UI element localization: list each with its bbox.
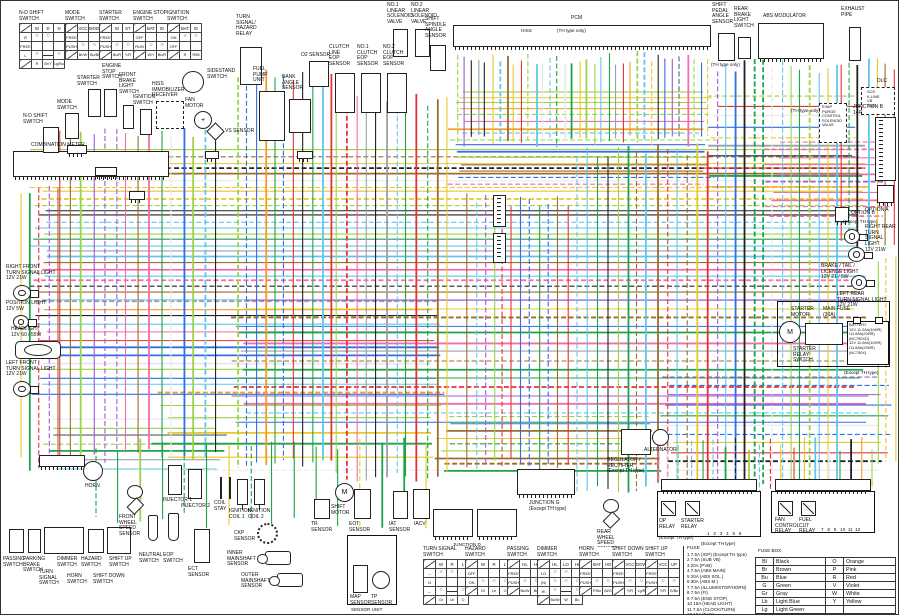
parking-brake-switch [28, 529, 41, 553]
relay-box-b-connector [775, 479, 871, 491]
meter-connector-3 [129, 191, 145, 200]
color-code: Br [756, 566, 774, 574]
switch-table-horn-switch: HORN SWITCHBATHOFREEPUSH○○P/BuBl/G [579, 547, 614, 596]
alternator-label: ALTERNATOR [644, 448, 677, 454]
right-rear-turn-signal-light-label: RIGHT REAR TURN SIGNAL LIGHT 12V 21W [865, 225, 898, 253]
switch-table-hazard-switch: HAZARD SWITCHWRLOFFON○○○GrLbO [465, 547, 511, 596]
diagram-note-9: FUSE BOX [758, 548, 781, 553]
ignition-switch-table: BATIGON○○OFFRR/Bl [167, 23, 202, 60]
col-header: ST [123, 24, 134, 33]
map-sensor-icon [353, 565, 368, 593]
shift-spindle-angle-sensor-label: SHIFT SPINDLE ANGLE SENSOR [425, 17, 446, 40]
col-header: N [54, 24, 65, 33]
horn-switch-table-title: HORN SWITCH [579, 547, 614, 558]
legend-table: BlBlackOOrangeBrBrownPPinkBuBlueRRedGGre… [755, 557, 896, 614]
nd-shift-switch-table: IGDNR○○FREEL○○RBr/YLg/Bu [19, 23, 65, 69]
diagram-note-7: 1 2 3 4 5 6 [707, 531, 741, 536]
switch-table-nd-shift-switch: N-D SHIFT SWITCHIGDNR○○FREEL○○RBr/YLg/Bu [19, 11, 65, 69]
horn [83, 461, 103, 481]
rear-brake-light-switch [738, 37, 751, 59]
col-header: LO [561, 560, 572, 569]
shift-up-switch-label-label: SHIFT UP SWITCH [109, 557, 132, 568]
dimmer-switch-table-title: DIMMER SWITCH [537, 547, 583, 558]
table-cell [489, 569, 500, 578]
color-code [826, 606, 844, 614]
op-relay-label: OP RELAY [659, 519, 675, 530]
col-header: VCC [625, 560, 636, 569]
ignition-coil-2-label: IGNITION COIL 2 [248, 509, 270, 520]
col-header: BAT [592, 560, 603, 569]
switch-table-ignition-switch: IGNITION SWITCHBATIGON○○OFFRR/Bl [167, 11, 202, 60]
junction-d-1 [433, 509, 473, 537]
no1-clutch-eop-sensor-label: NO.1 CLUTCH EOP SENSOR [357, 45, 378, 68]
turn-signal-switch-table-title: TURN SIGNAL SWITCH [423, 547, 469, 558]
nd-shift-switch [43, 127, 59, 153]
starter-relay [685, 501, 700, 516]
mid-junction-1 [493, 195, 506, 227]
table-cell [123, 33, 134, 42]
mode-switch-label: MODE SWITCH [57, 100, 77, 111]
color-name [844, 606, 896, 614]
nd-shift-switch-label: N-D SHIFT SWITCH [23, 114, 48, 125]
color-name: Brown [774, 566, 826, 574]
table-cell: ○ [54, 51, 65, 60]
shift-up-switch-table: VCCUPFREEPUSH○○Y/RG/Bu [645, 559, 680, 596]
color-name: Red [844, 574, 896, 582]
diagram-note-2: (TH type only) [711, 62, 740, 67]
table-cell [32, 42, 43, 51]
fuse-list: FUSE1 7.5A (IGP) (Except TH type)2 7.5A … [683, 546, 747, 615]
table-cell [191, 42, 202, 51]
horn-switch-label-label: HORN SWITCH [67, 574, 87, 585]
fuel-pump-unit-label: FUEL PUMP UNIT [253, 67, 267, 84]
iacv [413, 489, 430, 519]
table-cell: ○ [123, 42, 134, 51]
eop-switch-label: EOP SWITCH [163, 553, 183, 564]
neutral-switch [148, 515, 158, 541]
map-sensor-label: MAP SENSOR [350, 595, 371, 606]
col-header: UP [669, 560, 680, 569]
fan-control-relay-label: FAN CONTROL RELAY [775, 518, 799, 535]
alternator [652, 429, 669, 446]
table-cell: ○ [489, 578, 500, 587]
front-wheel-speed-sensor-icon [127, 485, 141, 513]
dlc-label: DLC [877, 79, 887, 85]
turn-signal-hazard-relay-label: TURN SIGNAL/ HAZARD RELAY [236, 15, 257, 38]
tp-sensor-icon [372, 571, 390, 589]
col-header: HL [550, 560, 561, 569]
starter-relay-switch-label: STARTER RELAY SWITCH [793, 347, 816, 364]
no2-clutch-eop-sensor-label: NO.2 CLUTCH EOP SENSOR [383, 45, 404, 68]
color-name: White [844, 590, 896, 598]
col-header: IG [32, 24, 43, 33]
diagram-note-4: (Except TH type) [843, 219, 877, 224]
headlight [15, 341, 61, 359]
engine-stop-switch-table: BATIGOFFRUN○○W/YBu/R [133, 23, 168, 60]
inner-mainshaft-sensor-label: INNER MAINSHAFT SENSOR [227, 551, 256, 568]
color-code: Bl [756, 558, 774, 566]
diagram-note-5: (Except TH type) [844, 370, 878, 375]
fan-control-relay [778, 501, 793, 516]
table-cell [43, 51, 54, 60]
color-code: Lb [756, 598, 774, 606]
diagram-note-12: (Except TH type) [659, 535, 693, 540]
table-cell: ○ [550, 569, 561, 578]
inner-mainshaft-sensor-icon [265, 551, 291, 565]
mode-switch [65, 113, 79, 139]
table-cell [78, 33, 89, 42]
col-header: IG [157, 24, 168, 33]
shift-pedal-angle-sensor-icon [718, 33, 735, 61]
fan-motor-label: FAN MOTOR [185, 98, 204, 109]
position-light-label: POSITION LIGHT 12V 5W [6, 301, 46, 312]
sidestand-switch [182, 71, 204, 93]
junction-g-label: JUNCTION G (Except TH type) [529, 501, 566, 512]
table-cell: ○ [550, 578, 561, 587]
color-code: Lg [756, 606, 774, 614]
col-header: IG [191, 24, 202, 33]
table-cell: ○ [520, 578, 531, 587]
rear-wheel-speed-sensor-icon [603, 499, 617, 527]
immobilizer-receiver-label: HISS IMMOBILIZER RECEIVER [152, 82, 185, 99]
bank-angle-sensor-label: BANK ANGLE SENSOR [282, 75, 303, 92]
mid-junction-2 [493, 233, 506, 263]
table-cell: ○ [658, 578, 669, 587]
color-name: Green [774, 582, 826, 590]
iacv-label: IACV [414, 522, 426, 528]
injector-2-label: INJECTOR 2 [181, 504, 210, 510]
shift-down-switch-table-title: SHIFT DOWN SWITCH [612, 547, 648, 558]
starter-relay-label: STARTER RELAY [681, 519, 704, 530]
tp-sensor-label: TP SENSOR [371, 595, 392, 606]
color-name: Yellow [844, 598, 896, 606]
table-cell: ○ [447, 569, 458, 578]
col-header: D [43, 24, 54, 33]
starter-motor-icon: M [779, 321, 801, 343]
table-cell [592, 569, 603, 578]
diagram-note-11: SENSOR UNIT [351, 607, 382, 612]
table-cell [447, 587, 458, 596]
diagram-note-0: HISS [521, 28, 532, 33]
table-cell [54, 42, 65, 51]
switch-table-shift-up-switch: SHIFT UP SWITCHVCCUPFREEPUSH○○Y/RG/Bu [645, 547, 680, 596]
fan-motor-icon: + [194, 111, 212, 129]
switch-table-dimmer-switch: DIMMER SWITCHHLLOHILO○○(N)○○○HI○○Bu/WWBu [537, 547, 583, 605]
color-name: Black [774, 558, 826, 566]
col-header: R [489, 560, 500, 569]
table-cell [43, 42, 54, 51]
o2-sensor-icon [309, 61, 329, 87]
starter-switch [88, 89, 101, 117]
table-cell: ○ [191, 33, 202, 42]
starter-motor-label: STARTER MOTOR [791, 307, 814, 318]
color-code: P [826, 566, 844, 574]
table-cell: ○ [32, 33, 43, 42]
relay-box-a-connector [661, 479, 757, 491]
coil-stay-label: COIL STAY [214, 501, 226, 512]
junction-d-2 [477, 509, 517, 537]
switch-table-shift-down-switch: SHIFT DOWN SWITCHVCCDOWNFREEPUSH○○Y/RLg/… [612, 547, 648, 596]
fuel-pump-unit [259, 91, 285, 141]
rear-brake-light-switch-label: REAR BRAKE LIGHT SWITCH [734, 7, 754, 30]
dimmer-switch-label-label: DIMMER SWITCH [57, 557, 77, 568]
harness-connector-strip [39, 455, 85, 467]
sidestand-switch-label: SIDESTAND SWITCH [207, 69, 235, 80]
harness-connector-4 [205, 151, 219, 159]
ect-sensor-icon [194, 529, 210, 563]
table-cell [561, 587, 572, 596]
pcm-label: PCM [571, 16, 582, 22]
table-cell: ○ [561, 578, 572, 587]
mode-switch-table: VCCMODEFREEPUSH○○Br/WBu/Bl [65, 23, 101, 60]
regulator-rectifier-label: REGULATOR / RECTIFIER (Except TH type) [607, 458, 644, 475]
table-cell: ○ [43, 33, 54, 42]
eot-sensor-icon [354, 489, 371, 519]
turn-signal-dimmer-switch [44, 527, 84, 554]
table-cell: ○ [436, 569, 447, 578]
mode-switch-table-title: MODE SWITCH [65, 11, 101, 22]
tr-sensor-label: TR SENSOR [311, 522, 332, 533]
fuel-cut-relay [801, 501, 816, 516]
ignition-coil-1 [237, 479, 248, 505]
engine-stop-switch [104, 89, 117, 117]
col-header: HL [520, 560, 531, 569]
right-front-turn-signal-light [13, 285, 31, 301]
color-name: Violet [844, 582, 896, 590]
starter-switch-label: STARTER SWITCH [77, 76, 100, 87]
nd-shift-switch-table-title: N-D SHIFT SWITCH [19, 11, 65, 22]
turn-signal-switch-table: WRL→○○N←○○GrLbO [423, 559, 469, 605]
exhaust-pipe [849, 27, 861, 61]
wiring-diagram-canvas: COMBINATION METERRIGHT FRONT TURN SIGNAL… [0, 0, 899, 615]
battery-label: BATTERY 12V 11.2Ah(10HR) /11.8Ah(20HR) (… [849, 323, 882, 355]
no1-linear-solenoid-valve-label: NO.1 LINEAR SOLENOID VALVE [387, 3, 413, 26]
shift-spindle-angle-sensor-icon [430, 45, 446, 71]
option-a [877, 185, 894, 203]
injector-2 [188, 469, 202, 499]
switch-table-mode-switch: MODE SWITCHVCCMODEFREEPUSH○○Br/WBu/Bl [65, 11, 101, 60]
col-header: W [436, 560, 447, 569]
headlight-label: HEADLIGHT 12V 60 / 55W [11, 327, 41, 338]
turn-signal-switch-label-label: TURN SIGNAL SWITCH [39, 570, 59, 587]
switch-table-starter-switch: STARTER SWITCHIGSTFREEPUSH○○Bu/RY/R [99, 11, 134, 60]
table-cell: ○ [550, 587, 561, 596]
iat-sensor-label: IAT SENSOR [389, 522, 410, 533]
col-header: VCC [78, 24, 89, 33]
color-code: V [826, 582, 844, 590]
table-cell [658, 569, 669, 578]
right-front-turn-signal-light-label: RIGHT FRONT TURN SIGNAL LIGHT 12V 21W [6, 265, 56, 282]
shift-motor-icon: M [335, 483, 354, 502]
table-cell: ○ [669, 578, 680, 587]
vs-sensor-label: VS SENSOR [225, 129, 254, 135]
exhaust-pipe-label: EXHAUST PIPE [841, 7, 865, 18]
left-front-turn-signal-light-label: LEFT FRONT TURN SIGNAL LIGHT 12V 21W [6, 361, 56, 378]
table-cell [157, 33, 168, 42]
color-name: Pink [844, 566, 896, 574]
color-code: G [756, 582, 774, 590]
ignition-switch-table-title: IGNITION SWITCH [167, 11, 202, 22]
table-cell: ○ [592, 578, 603, 587]
table-cell [436, 578, 447, 587]
shift-down-switch-table: VCCDOWNFREEPUSH○○Y/RLg/R [612, 559, 648, 596]
wire-color-legend: BlBlackOOrangeBrBrownPPinkBuBlueRRedGGre… [755, 557, 896, 614]
col-header: R [447, 560, 458, 569]
immobilizer-receiver [156, 101, 184, 129]
combination-meter [13, 151, 169, 177]
harness-connector-5 [297, 151, 313, 159]
ect-sensor-label: ECT SENSOR [188, 567, 209, 578]
table-cell [146, 33, 157, 42]
hazard-switch-table: WRLOFFON○○○GrLbO [465, 559, 511, 596]
table-cell: ○ [625, 578, 636, 587]
junction-g [517, 469, 575, 495]
col-header: BAT [180, 24, 191, 33]
eop-switch [168, 513, 179, 541]
table-cell: ○ [436, 587, 447, 596]
color-code: R [826, 574, 844, 582]
table-cell [447, 578, 458, 587]
tr-sensor-icon [314, 499, 330, 519]
main-fuse-label: MAIN FUSE (30A) [823, 307, 850, 318]
no2-clutch-eop-sensor-icon [387, 73, 407, 113]
table-cell: ○ [112, 42, 123, 51]
shift-up-switch-table-title: SHIFT UP SWITCH [645, 547, 680, 558]
diagram-note-1: (TH type only) [557, 28, 586, 33]
ckp-sensor-icon [257, 523, 278, 544]
injector-1 [168, 465, 182, 495]
front-brake-light-switch [123, 105, 134, 129]
abs-modulator-label: ABS MODULATOR [763, 14, 806, 20]
shift-pedal-angle-sensor-label: SHIFT PEDAL ANGLE SENSOR [712, 3, 733, 26]
hazard-switch-table-title: HAZARD SWITCH [465, 547, 511, 558]
color-code: O [826, 558, 844, 566]
starter-switch-table-title: STARTER SWITCH [99, 11, 134, 22]
meter-connector-2 [95, 167, 117, 176]
col-header: VCC [658, 560, 669, 569]
table-cell [54, 33, 65, 42]
color-code: Gr [756, 590, 774, 598]
o2-sensor-label: O2 SENSOR [301, 53, 330, 59]
left-front-turn-signal-light [13, 381, 31, 397]
color-name: Gray [774, 590, 826, 598]
iat-sensor-icon [393, 491, 408, 519]
hazard-switch [88, 529, 104, 553]
brake-tail-license-light-label: BRAKE / TAIL / LICENSE LIGHT 12V 21 / 5W [821, 264, 859, 281]
hazard-switch-label: HAZARD SWITCH [81, 557, 102, 568]
ignition-switch [140, 109, 152, 135]
passing-switch [9, 529, 24, 553]
color-code: W [826, 590, 844, 598]
horn-switch-table: BATHOFREEPUSH○○P/BuBl/G [579, 559, 614, 596]
dimmer-switch-table: HLLOHILO○○(N)○○○HI○○Bu/WWBu [537, 559, 583, 605]
switch-table-engine-stop-switch: ENGINE STOP SWITCHBATIGOFFRUN○○W/YBu/R [133, 11, 168, 60]
coil-stay [220, 477, 234, 499]
table-cell [180, 42, 191, 51]
neutral-switch-label: NEUTRAL SWITCH [139, 553, 162, 564]
outer-mainshaft-sensor-icon [277, 573, 303, 587]
front-brake-light-switch-label: FRONT BRAKE LIGHT SWITCH [119, 73, 139, 96]
color-code: Y [826, 598, 844, 606]
ckp-sensor-label: CKP SENSOR [234, 531, 255, 542]
starter-switch-table: IGSTFREEPUSH○○Bu/RY/R [99, 23, 134, 60]
junction-b [875, 117, 896, 181]
col-header: W [478, 560, 489, 569]
brake-tail-license-light [848, 247, 865, 262]
junction-b-label: JUNCTION B 14P [853, 105, 883, 116]
option-b-label: OPTION B [851, 211, 875, 217]
passing-switch-label: PASSING SWITCH [3, 557, 25, 568]
table-cell [478, 569, 489, 578]
table-cell: ○ [78, 42, 89, 51]
eot-sensor-label: EOT SENSOR [349, 522, 370, 533]
color-code: Bu [756, 574, 774, 582]
horn-label: HORN [85, 484, 100, 490]
table-cell [520, 569, 531, 578]
op-relay [661, 501, 676, 516]
table-cell: ○ [32, 51, 43, 60]
table-cell: ○ [478, 578, 489, 587]
table-cell: ○ [561, 569, 572, 578]
ignition-coil-2 [254, 479, 265, 505]
combination-meter-label: COMBINATION METER [31, 143, 85, 149]
table-cell: ○ [146, 42, 157, 51]
fuel-cut-relay-label: FUEL CUT RELAY [799, 518, 815, 535]
abs-modulator [758, 23, 824, 59]
color-name: Light Blue [774, 598, 826, 606]
col-header: IG [112, 24, 123, 33]
no1-clutch-eop-sensor-icon [361, 73, 381, 113]
right-rear-turn-signal-light [844, 229, 860, 244]
shift-down-switch-label-label: SHIFT DOWN SWITCH [93, 574, 125, 585]
table-cell [669, 569, 680, 578]
diagram-note-8: 7 8 9 10 11 12 [821, 527, 860, 532]
clutch-line-eop-sensor-icon [335, 73, 355, 113]
evap-purge-solenoid-label: EVAP PURGE CONTROL SOLENOID VALVE [822, 105, 842, 128]
switch-table-turn-signal-switch: TURN SIGNAL SWITCHWRL→○○N←○○GrLbO [423, 547, 469, 605]
front-wheel-speed-sensor-label: FRONT WHEEL SPEED SENSOR [119, 515, 140, 538]
color-name: Blue [774, 574, 826, 582]
clutch-line-eop-sensor-label: CLUTCH LINE EOP SENSOR [329, 45, 350, 68]
main-fuse [805, 323, 843, 345]
table-cell [625, 569, 636, 578]
diagram-note-3: (TH type only) [791, 108, 820, 113]
bank-angle-sensor-icon [289, 99, 311, 133]
col-header: BAT [146, 24, 157, 33]
table-cell: ○ [157, 42, 168, 51]
outer-mainshaft-sensor-label: OUTER MAINSHAFT SENSOR [241, 573, 270, 590]
shift-motor-label: SHIFT MOTOR [331, 505, 350, 516]
color-name: Light Green [774, 606, 826, 614]
table-cell: ○ [180, 33, 191, 42]
table-cell [112, 33, 123, 42]
color-name: Orange [844, 558, 896, 566]
engine-stop-switch-table-title: ENGINE STOP SWITCH [133, 11, 168, 22]
